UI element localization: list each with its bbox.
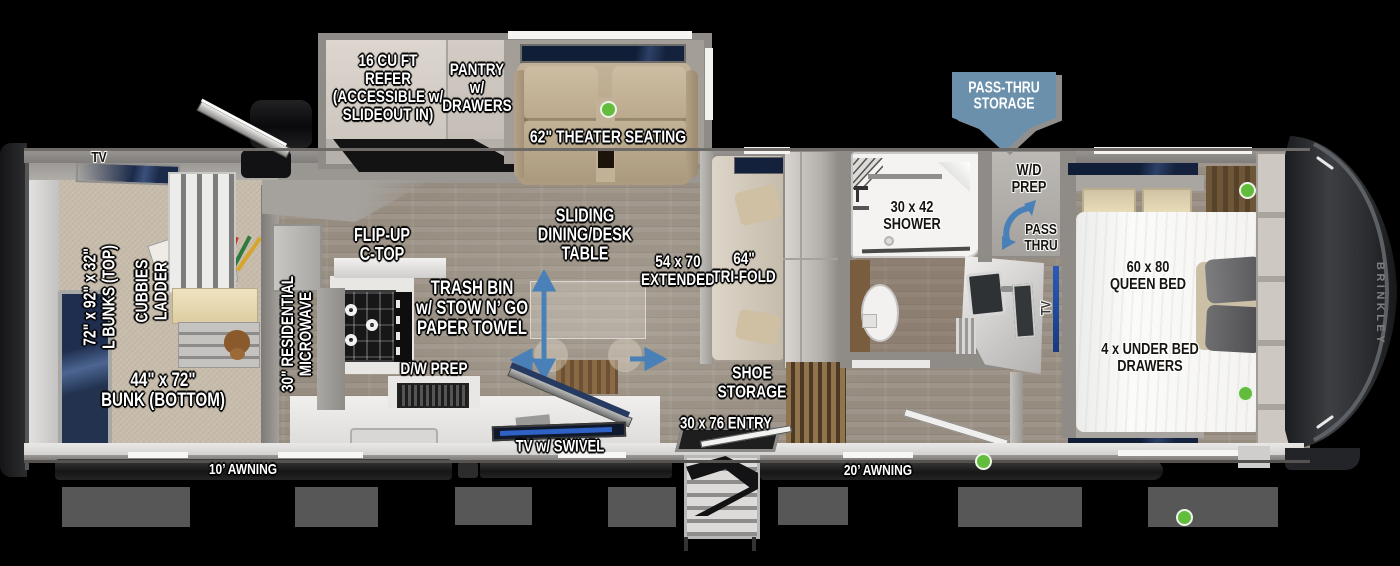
svg-text:BRINKLEY: BRINKLEY — [1374, 262, 1386, 346]
